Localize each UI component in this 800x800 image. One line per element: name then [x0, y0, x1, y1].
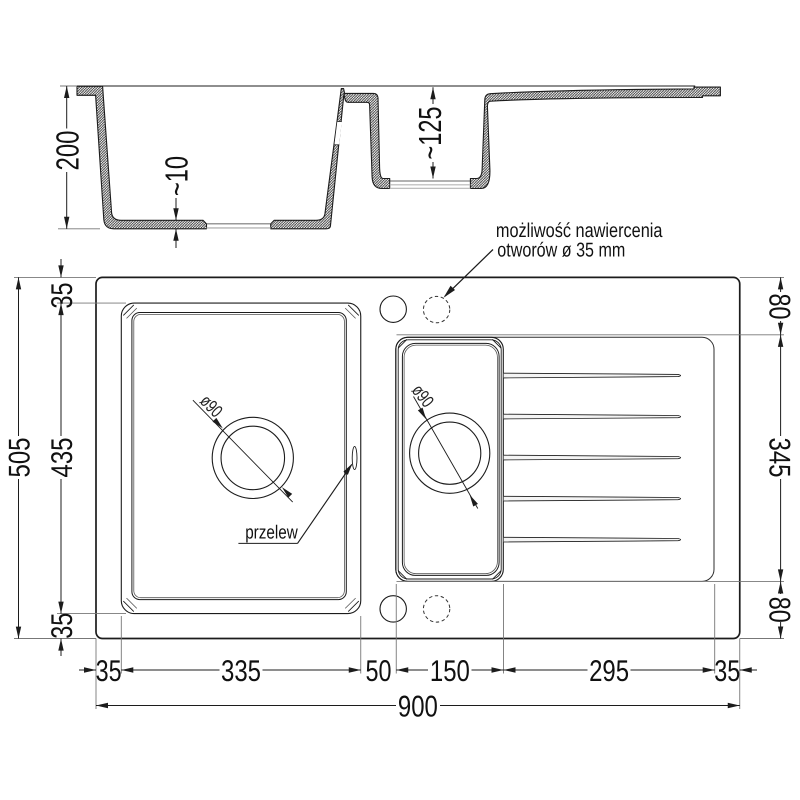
svg-text:80: 80: [763, 597, 796, 623]
svg-text:295: 295: [589, 655, 629, 688]
svg-text:otworów ø 35 mm: otworów ø 35 mm: [497, 239, 625, 261]
svg-text:345: 345: [763, 438, 796, 478]
svg-text:150: 150: [430, 655, 470, 688]
svg-text:335: 335: [221, 655, 261, 688]
svg-text:~10: ~10: [159, 156, 195, 196]
svg-text:505: 505: [3, 438, 36, 478]
svg-text:przelew: przelew: [245, 523, 298, 544]
svg-text:50: 50: [366, 655, 392, 688]
svg-text:200: 200: [49, 131, 85, 171]
svg-text:35: 35: [46, 613, 79, 639]
svg-text:80: 80: [763, 294, 796, 320]
svg-text:435: 435: [46, 438, 79, 478]
svg-text:~125: ~125: [412, 107, 448, 160]
svg-text:35: 35: [96, 655, 122, 688]
svg-text:900: 900: [398, 691, 438, 724]
svg-text:35: 35: [714, 655, 740, 688]
svg-text:35: 35: [46, 283, 79, 309]
